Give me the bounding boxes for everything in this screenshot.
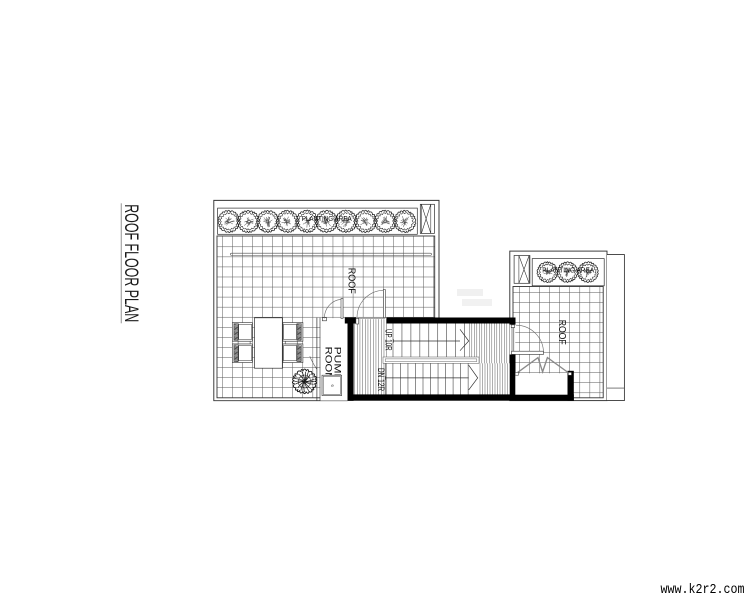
svg-text:ROOF: ROOF xyxy=(556,320,567,345)
svg-text:ROOF FLOOR PLAN: ROOF FLOOR PLAN xyxy=(120,204,141,322)
svg-text:ROOF: ROOF xyxy=(345,268,356,294)
svg-text:PLANTING AREA: PLANTING AREA xyxy=(302,216,352,223)
svg-text:PLANTING AREA: PLANTING AREA xyxy=(542,268,594,275)
svg-text:DN 12R: DN 12R xyxy=(375,368,386,391)
svg-text:UP 10R: UP 10R xyxy=(383,329,394,351)
svg-text:www.k2r2.com: www.k2r2.com xyxy=(661,582,745,598)
